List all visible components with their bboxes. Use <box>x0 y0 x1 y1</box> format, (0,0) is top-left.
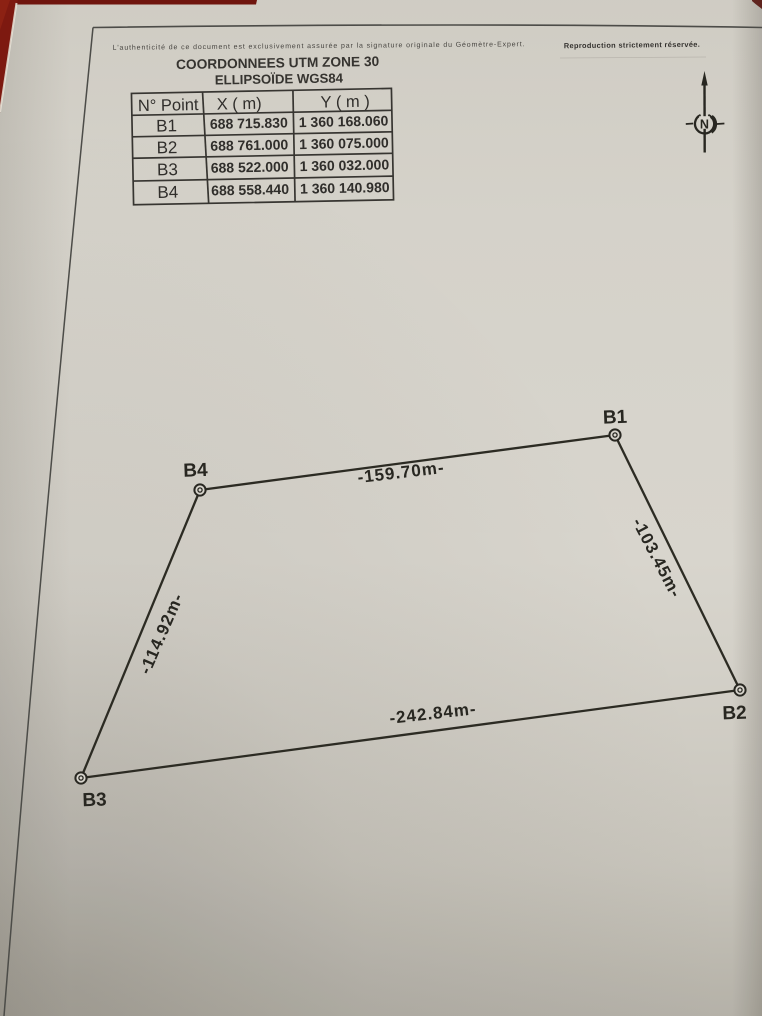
svg-text:B2: B2 <box>156 138 177 157</box>
svg-text:Y ( m ): Y ( m ) <box>320 93 370 112</box>
svg-text:1 360 168.060: 1 360 168.060 <box>299 112 389 130</box>
svg-text:Reproduction strictement réser: Reproduction strictement réservée. <box>564 40 700 50</box>
svg-text:B4: B4 <box>157 183 178 202</box>
svg-text:ELLIPSOÏDE WGS84: ELLIPSOÏDE WGS84 <box>215 70 344 87</box>
svg-text:688 558.440: 688 558.440 <box>211 181 289 198</box>
svg-text:B3: B3 <box>82 789 107 811</box>
svg-text:688 761.000: 688 761.000 <box>210 136 288 153</box>
svg-text:688 715.830: 688 715.830 <box>210 114 288 131</box>
svg-text:N: N <box>700 118 709 132</box>
svg-text:1 360 075.000: 1 360 075.000 <box>299 134 389 152</box>
svg-text:B1: B1 <box>603 407 628 429</box>
svg-text:B2: B2 <box>722 703 747 725</box>
svg-text:B3: B3 <box>157 160 178 179</box>
svg-text:X ( m): X ( m) <box>217 95 262 114</box>
svg-text:1 360 032.000: 1 360 032.000 <box>299 156 389 174</box>
svg-text:N° Point: N° Point <box>138 96 199 115</box>
svg-text:688 522.000: 688 522.000 <box>211 158 289 175</box>
svg-text:B1: B1 <box>156 116 177 135</box>
svg-text:1 360 140.980: 1 360 140.980 <box>300 179 390 197</box>
svg-text:B4: B4 <box>183 460 208 482</box>
svg-text:COORDONNEES UTM ZONE 30: COORDONNEES UTM ZONE 30 <box>176 54 380 72</box>
